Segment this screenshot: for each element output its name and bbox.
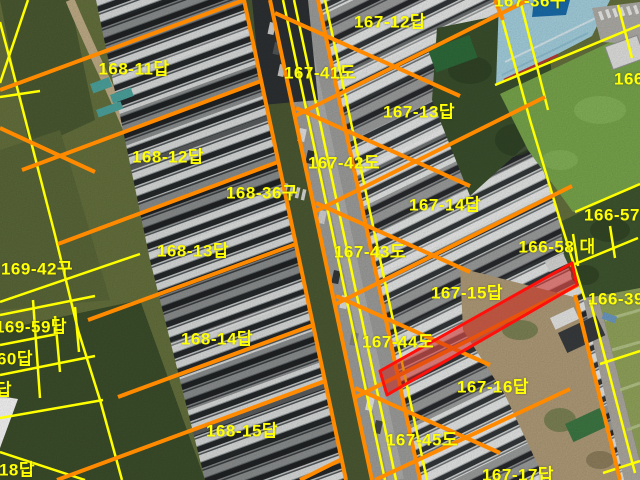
cadastral-map-viewport[interactable]: 168-11답168-12답168-36구168-13답168-14답168-1… [0, 0, 640, 480]
aerial-photo-layer [0, 0, 640, 480]
